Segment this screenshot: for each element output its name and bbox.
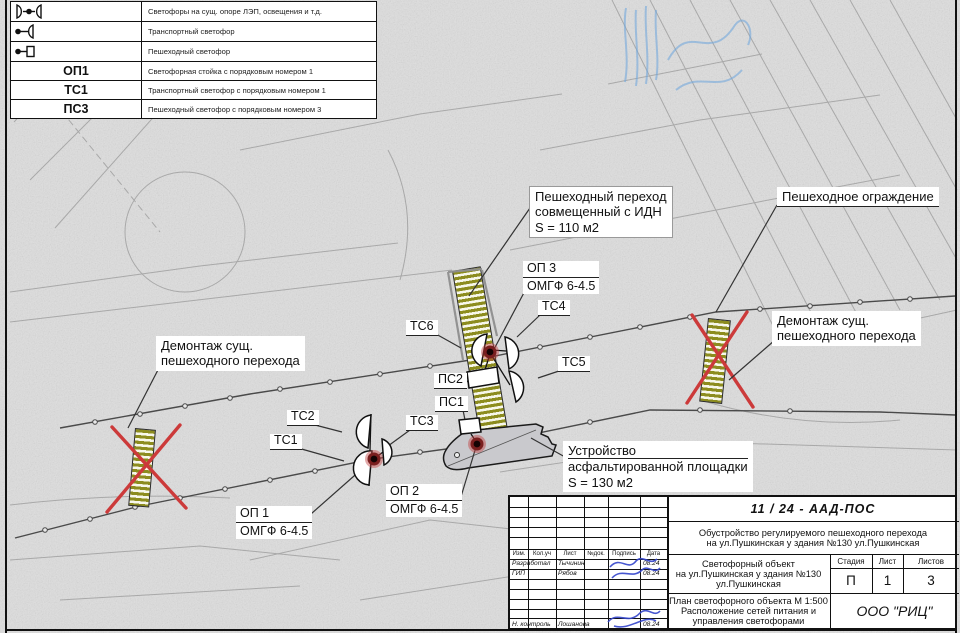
legend-row: Пешеходный светофор	[11, 42, 377, 62]
company-name: ООО "РИЦ"	[830, 593, 959, 628]
pole-op3	[481, 343, 499, 361]
pedestrian-signal-icon	[12, 43, 38, 60]
legend-row: ОП1 Светофорная стойка с порядковым номе…	[11, 62, 377, 81]
role-ncontrol: Н. контроль	[512, 621, 558, 628]
legend-label: Транспортный светофор	[142, 22, 377, 42]
callout-demolish-left: Демонтаж сущ. пешеходного перехода	[156, 336, 305, 371]
pole-op2	[468, 435, 486, 453]
object-line: ул.Пушкинская	[716, 579, 781, 589]
role-gip: ГИП	[512, 570, 558, 577]
object-line: на ул.Пушкинская у здания №130	[676, 569, 822, 579]
callout-line: совмещенный с ИДН	[535, 204, 667, 219]
legend-label: Пешеходный светофор с порядковым номером…	[142, 100, 377, 119]
legend-label: Светофоры на сущ. опоре ЛЭП, освещения и…	[142, 2, 377, 22]
name-ncontrol: Лошанова	[558, 621, 608, 628]
callout-line: ОП 1	[236, 506, 312, 523]
legend-row: ПС3 Пешеходный светофор с порядковым ном…	[11, 100, 377, 119]
callout-asphalt: Устройство асфальтированной площадки S =…	[563, 441, 753, 492]
callout-line: ОП 3	[523, 261, 599, 278]
stage-value: П	[830, 568, 872, 593]
date-gip: 08.24	[643, 570, 667, 577]
date-developed: 08.24	[643, 560, 667, 567]
callout-line: пешеходного перехода	[161, 353, 300, 368]
plan-title-line: План светофорного объекта М 1:500	[669, 596, 828, 606]
transport-signal-icon	[12, 23, 38, 40]
legend-symbol-tc1: ТС1	[11, 81, 142, 100]
plan-title-line: Расположение сетей питания и	[681, 606, 816, 616]
callout-line: Устройство	[568, 443, 748, 459]
object-name: Светофорный объект на ул.Пушкинская у зд…	[667, 554, 830, 593]
callout-tc2: ТС2	[287, 410, 319, 426]
callout-tc1: ТС1	[270, 434, 302, 450]
callout-line: ОМГФ 6-4.5	[236, 523, 312, 539]
callout-line: ОП 2	[386, 484, 462, 501]
callout-line: Демонтаж сущ.	[777, 313, 916, 328]
legend-label: Транспортный светофор с порядковым номер…	[142, 81, 377, 100]
callout-op1: ОП 1 ОМГФ 6-4.5	[236, 506, 312, 539]
plan-title-line: управления светофорами	[693, 616, 805, 626]
stage-label: Стадия	[830, 554, 872, 568]
legend-symbol-ps3: ПС3	[11, 100, 142, 119]
plan-title: План светофорного объекта М 1:500 Распол…	[667, 593, 830, 628]
sheet-label: Лист	[872, 554, 903, 568]
col-koluch: Кол.уч	[528, 549, 556, 559]
legend-symbol-op1: ОП1	[11, 62, 142, 81]
callout-op2: ОП 2 ОМГФ 6-4.5	[386, 484, 462, 517]
callout-line: асфальтированной площадки	[568, 459, 748, 474]
callout-tc5: ТС5	[558, 356, 590, 372]
dual-transport-signal-icon	[12, 3, 46, 20]
legend-table: Светофоры на сущ. опоре ЛЭП, освещения и…	[10, 1, 377, 119]
callout-line: Пешеходный переход	[535, 189, 667, 204]
drawing-sheet: Светофоры на сущ. опоре ЛЭП, освещения и…	[0, 0, 960, 633]
callout-line: S = 130 м2	[568, 475, 748, 490]
role-developed: Разработал	[512, 560, 558, 567]
callout-line: S = 110 м2	[535, 220, 667, 235]
title-block: 11 / 24 - ААД-ПОС Обустройство регулируе…	[508, 495, 957, 630]
project-name: Обустройство регулируемого пешеходного п…	[667, 521, 959, 554]
callout-ps2: ПС2	[434, 373, 467, 389]
object-line: Светофорный объект	[702, 559, 795, 569]
red-x-right-icon	[687, 312, 753, 407]
col-data: Дата	[640, 549, 667, 559]
callout-tc4: ТС4	[538, 300, 570, 316]
col-ndok: №док.	[584, 549, 608, 559]
callout-line: ОМГФ 6-4.5	[523, 278, 599, 294]
callout-ped-crossing: Пешеходный переход совмещенный с ИДН S =…	[529, 186, 673, 238]
sheets-value: 3	[903, 568, 959, 593]
legend-row: ТС1 Транспортный светофор с порядковым н…	[11, 81, 377, 100]
project-line: на ул.Пушкинская у здания №130 ул.Пушкин…	[707, 538, 920, 548]
signal-discs-op1	[353, 414, 391, 486]
callout-op3: ОП 3 ОМГФ 6-4.5	[523, 261, 599, 294]
callout-fence: Пешеходное ограждение	[777, 187, 939, 207]
callout-tc3: ТС3	[406, 415, 438, 431]
callout-line: ОМГФ 6-4.5	[386, 501, 462, 517]
sheets-label: Листов	[903, 554, 959, 568]
callout-line: пешеходного перехода	[777, 328, 916, 343]
legend-label: Светофорная стойка с порядковым номером …	[142, 62, 377, 81]
col-list: Лист	[556, 549, 584, 559]
pole-op1	[365, 450, 383, 468]
signal-discs-op3	[467, 334, 524, 402]
red-x-left-icon	[107, 425, 186, 512]
name-gip: Рябов	[558, 570, 608, 577]
name-developed: Тычинин	[558, 560, 608, 567]
project-line: Обустройство регулируемого пешеходного п…	[699, 528, 927, 538]
legend-row: Светофоры на сущ. опоре ЛЭП, освещения и…	[11, 2, 377, 22]
legend-row: Транспортный светофор	[11, 22, 377, 42]
callout-demolish-right: Демонтаж сущ. пешеходного перехода	[772, 311, 921, 346]
callout-tc6: ТС6	[406, 320, 438, 336]
col-izm: Изм.	[510, 549, 528, 559]
legend-label: Пешеходный светофор	[142, 42, 377, 62]
callout-ps1: ПС1	[435, 396, 468, 412]
sheet-value: 1	[872, 568, 903, 593]
date-ncontrol: 08.24	[643, 621, 667, 628]
col-podpis: Подпись	[608, 549, 640, 559]
callout-line: Демонтаж сущ.	[161, 338, 300, 353]
doc-number: 11 / 24 - ААД-ПОС	[667, 497, 959, 521]
